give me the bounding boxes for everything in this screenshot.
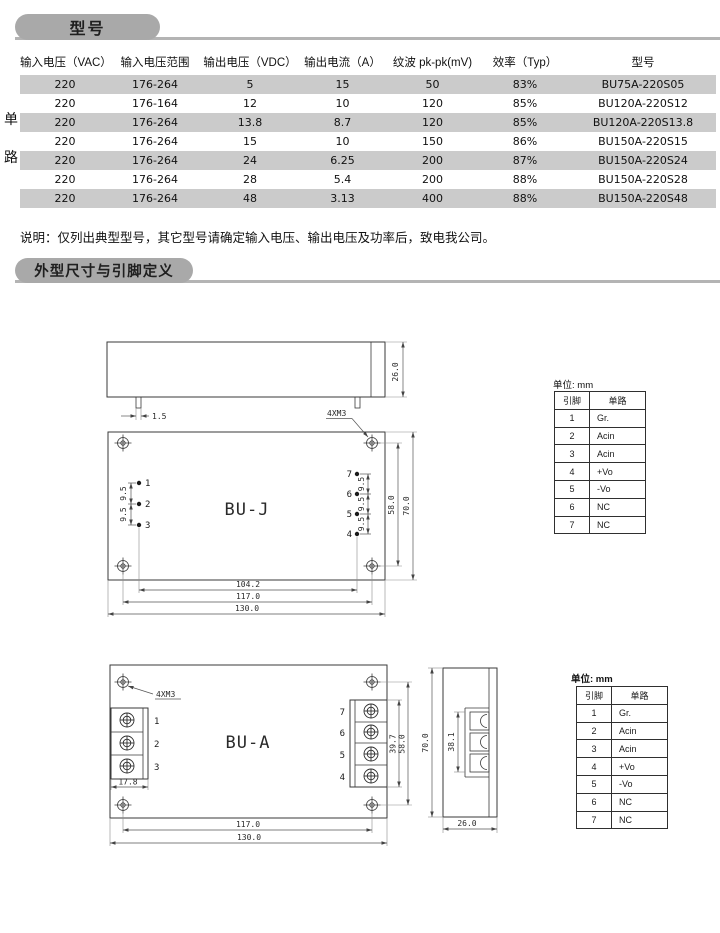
cell: Gr. — [612, 704, 668, 722]
cell: 6 — [577, 793, 612, 811]
cell: 176-264 — [110, 189, 200, 208]
dim-label: 104.2 — [236, 580, 260, 589]
cell: 220 — [20, 113, 110, 132]
cell: 83% — [480, 75, 570, 94]
cell: -Vo — [612, 775, 668, 793]
cell: 4 — [577, 758, 612, 776]
section-title-text: 外型尺寸与引脚定义 — [34, 260, 174, 281]
row-group-label-single: 单 — [3, 109, 19, 129]
table-row: 1Gr. — [577, 704, 668, 722]
cell: BU75A-220S05 — [570, 75, 716, 94]
cell: 5.4 — [300, 170, 385, 189]
cell: 220 — [20, 151, 110, 170]
cell: -Vo — [590, 480, 646, 498]
mounting-hole-icon — [364, 674, 381, 691]
col-header: 型号 — [570, 48, 716, 75]
cell: 85% — [480, 94, 570, 113]
dim-label: 117.0 — [236, 820, 260, 829]
bu-j-top-view: BU-J 1 2 3 9.5 9.5 7 6 5 4 — [108, 432, 417, 617]
cell: 7 — [577, 811, 612, 829]
unit-label: 单位: mm — [571, 671, 613, 685]
cell: NC — [612, 811, 668, 829]
bu-a-left-terminal-block: 1 2 3 17.8 — [111, 708, 159, 790]
dim-label: 17.8 — [118, 778, 137, 787]
cell: Gr. — [590, 409, 646, 427]
cell: 176-264 — [110, 132, 200, 151]
dim-label: 117.0 — [236, 592, 260, 601]
cell: 88% — [480, 170, 570, 189]
bu-a-side-view: 70.0 38.1 26.0 — [421, 668, 497, 833]
dim-26: 26.0 — [385, 342, 407, 397]
dim-label: 70.0 — [402, 496, 411, 515]
dim-label: 9.5 — [357, 477, 366, 492]
bu-a-right-terminal-block: 7 6 5 4 — [340, 700, 387, 787]
dim-58: 58.0 — [378, 443, 402, 566]
cell: BU150A-220S15 — [570, 132, 716, 151]
cell: Acin — [590, 427, 646, 445]
cell: 6.25 — [300, 151, 385, 170]
pin-definition-table-buj: 引脚单路 1Gr. 2Acin 3Acin 4+Vo 5-Vo 6NC 7NC — [554, 391, 646, 534]
pin-dot — [137, 481, 141, 485]
mounting-hole-icon — [115, 674, 132, 691]
table-row: 220176-264483.1340088%BU150A-220S48 — [20, 189, 716, 208]
section-title-models: 型号 — [15, 14, 160, 40]
pin-number: 3 — [154, 763, 159, 773]
dim-label: 9.5 — [119, 486, 128, 501]
cell: 200 — [385, 170, 480, 189]
mounting-hole-icon — [115, 797, 132, 814]
cell: 200 — [385, 151, 480, 170]
cell: 86% — [480, 132, 570, 151]
cell: 3.13 — [300, 189, 385, 208]
dim-label: 58.0 — [398, 734, 407, 753]
cell: 87% — [480, 151, 570, 170]
cell: 176-264 — [110, 75, 200, 94]
cell: Acin — [612, 740, 668, 758]
cell: 7 — [555, 516, 590, 534]
cell: 15 — [200, 132, 300, 151]
table-row: 220176-2645155083%BU75A-220S05 — [20, 75, 716, 94]
terminal-screw-icon — [120, 713, 134, 727]
pin-dot — [355, 492, 359, 496]
cell: 150 — [385, 132, 480, 151]
cell: 400 — [385, 189, 480, 208]
cell: 220 — [20, 189, 110, 208]
dim-label: 130.0 — [237, 833, 261, 842]
table-row: 7NC — [555, 516, 646, 534]
pin-number: 7 — [347, 470, 352, 480]
cell: 1 — [577, 704, 612, 722]
cell: 5 — [200, 75, 300, 94]
cell: 13.8 — [200, 113, 300, 132]
dim-label: 39.7 — [389, 734, 398, 753]
pin-number: 6 — [340, 729, 345, 739]
table-row: 2Acin — [577, 722, 668, 740]
cell: 12 — [200, 94, 300, 113]
cell: BU120A-220S13.8 — [570, 113, 716, 132]
cell: 220 — [20, 94, 110, 113]
screw-label: 4XM3 — [327, 409, 346, 418]
col-header: 效率（Typ） — [480, 48, 570, 75]
terminal-screw-icon — [364, 704, 378, 718]
cell: 120 — [385, 113, 480, 132]
pin-col-header: 单路 — [590, 392, 646, 410]
col-header: 输入电压（VAC） — [20, 48, 110, 75]
table-row: 220176-26413.88.712085%BU120A-220S13.8 — [20, 113, 716, 132]
table-row: 7NC — [577, 811, 668, 829]
dim-label: 58.0 — [387, 495, 396, 514]
col-header: 输出电压（VDC） — [200, 48, 300, 75]
dim-117: 117.0 — [123, 811, 372, 833]
pin-dot — [137, 502, 141, 506]
terminal-screw-icon — [364, 747, 378, 761]
cell: 176-164 — [110, 94, 200, 113]
cell: 220 — [20, 170, 110, 189]
cell: Acin — [590, 445, 646, 463]
mounting-hole-icon — [364, 797, 381, 814]
dim-1-5: 1.5 — [121, 408, 167, 421]
dim-70: 70.0 — [421, 668, 443, 817]
bu-j-side-view: 26.0 1.5 4XM3 — [107, 342, 407, 437]
dim-label: 26.0 — [391, 362, 400, 381]
pin-number: 5 — [347, 510, 352, 520]
mounting-hole-icon — [364, 558, 381, 575]
pin-dot — [355, 472, 359, 476]
table-row: 4+Vo — [577, 758, 668, 776]
terminal-screw-icon — [364, 725, 378, 739]
cell: 48 — [200, 189, 300, 208]
cell: 85% — [480, 113, 570, 132]
pin-number: 2 — [154, 740, 159, 750]
cell: 2 — [555, 427, 590, 445]
cell: BU120A-220S12 — [570, 94, 716, 113]
dim-26: 26.0 — [443, 817, 497, 833]
cell: 1 — [555, 409, 590, 427]
terminal-screw-icon — [364, 769, 378, 783]
dim-label: 130.0 — [235, 604, 259, 613]
bu-a-top-view: BU-A 4XM3 1 2 3 17.8 — [110, 665, 412, 846]
cell: 10 — [300, 94, 385, 113]
pin-dot — [355, 532, 359, 536]
bu-j-left-pins: 1 2 3 9.5 9.5 — [119, 479, 150, 531]
cell: 3 — [577, 740, 612, 758]
dim-label: 9.5 — [357, 517, 366, 532]
cell: 10 — [300, 132, 385, 151]
cell: +Vo — [612, 758, 668, 776]
table-row: 4+Vo — [555, 463, 646, 481]
cell: NC — [590, 498, 646, 516]
mounting-hole-icon — [364, 435, 381, 452]
pin-col-header: 单路 — [612, 687, 668, 705]
table-row: 6NC — [577, 793, 668, 811]
cell: 4 — [555, 463, 590, 481]
mounting-hole-icon — [115, 435, 132, 452]
pin-number: 6 — [347, 490, 352, 500]
cell: 176-264 — [110, 151, 200, 170]
section-title-text: 型号 — [69, 15, 105, 39]
row-group-label-channel: 路 — [3, 147, 19, 167]
cell: BU150A-220S28 — [570, 170, 716, 189]
col-header: 输入电压范围 — [110, 48, 200, 75]
cell: 5 — [555, 480, 590, 498]
cell: 50 — [385, 75, 480, 94]
cell: 176-264 — [110, 170, 200, 189]
dim-104: 104.2 — [139, 528, 357, 593]
mounting-hole-icon — [115, 558, 132, 575]
screw-label: 4XM3 — [156, 690, 175, 699]
cell: NC — [590, 516, 646, 534]
dim-label: 38.1 — [447, 732, 456, 751]
module-label: BU-A — [226, 733, 271, 753]
spec-header-row: 输入电压（VAC） 输入电压范围 输出电压（VDC） 输出电流（A） 纹波 pk… — [20, 48, 716, 75]
module-label: BU-J — [225, 500, 270, 520]
dim-label: 9.5 — [357, 497, 366, 512]
table-row: 220176-264285.420088%BU150A-220S28 — [20, 170, 716, 189]
pin-col-header: 引脚 — [577, 687, 612, 705]
cell: 88% — [480, 189, 570, 208]
pin-number: 1 — [154, 717, 159, 727]
table-row: 220176-164121012085%BU120A-220S12 — [20, 94, 716, 113]
cell: 6 — [555, 498, 590, 516]
cell: 220 — [20, 132, 110, 151]
table-row: 3Acin — [577, 740, 668, 758]
dim-label: 9.5 — [119, 507, 128, 522]
unit-label: 单位: mm — [553, 377, 593, 391]
cell: 28 — [200, 170, 300, 189]
pin-number: 2 — [145, 500, 150, 510]
cell: 8.7 — [300, 113, 385, 132]
pin-definition-table-bua: 引脚单路 1Gr. 2Acin 3Acin 4+Vo 5-Vo 6NC 7NC — [576, 686, 668, 829]
pin-dot — [355, 512, 359, 516]
table-row: 1Gr. — [555, 409, 646, 427]
spec-table: 输入电压（VAC） 输入电压范围 输出电压（VDC） 输出电流（A） 纹波 pk… — [20, 48, 716, 208]
pin-number: 5 — [340, 751, 345, 761]
pin-col-header: 引脚 — [555, 392, 590, 410]
cell: NC — [612, 793, 668, 811]
cell: 5 — [577, 775, 612, 793]
terminal-screw-icon — [120, 736, 134, 750]
table-row: 220176-264151015086%BU150A-220S15 — [20, 132, 716, 151]
pin-number: 3 — [145, 521, 150, 531]
pin-number: 4 — [347, 530, 352, 540]
cell: Acin — [612, 722, 668, 740]
table-row: 2Acin — [555, 427, 646, 445]
screw-callout: 4XM3 — [326, 409, 368, 437]
table-row: 5-Vo — [577, 775, 668, 793]
dim-label: 1.5 — [152, 412, 167, 421]
dim-label: 70.0 — [421, 733, 430, 752]
terminal-screw-icon — [120, 759, 134, 773]
screw-callout: 4XM3 — [128, 686, 181, 699]
pin-number: 1 — [145, 479, 150, 489]
section-title-dimensions: 外型尺寸与引脚定义 — [15, 258, 193, 283]
cell: BU150A-220S48 — [570, 189, 716, 208]
table-row: 5-Vo — [555, 480, 646, 498]
table-row: 6NC — [555, 498, 646, 516]
cell: 2 — [577, 722, 612, 740]
table-row: 220176-264246.2520087%BU150A-220S24 — [20, 151, 716, 170]
dim-label: 26.0 — [457, 819, 476, 828]
cell: +Vo — [590, 463, 646, 481]
pin-dot — [137, 523, 141, 527]
cell: 120 — [385, 94, 480, 113]
col-header: 输出电流（A） — [300, 48, 385, 75]
col-header: 纹波 pk-pk(mV) — [385, 48, 480, 75]
cell: BU150A-220S24 — [570, 151, 716, 170]
table-row: 3Acin — [555, 445, 646, 463]
dim-38-1: 38.1 — [447, 712, 465, 772]
note-text: 说明：仅列出典型型号，其它型号请确定输入电压、输出电压及功率后，致电我公司。 — [20, 227, 495, 246]
bu-j-right-pins: 7 6 5 4 9.5 9.5 9.5 — [347, 470, 371, 540]
cell: 15 — [300, 75, 385, 94]
pin-number: 7 — [340, 708, 345, 718]
pin-number: 4 — [340, 773, 345, 783]
cell: 176-264 — [110, 113, 200, 132]
cell: 220 — [20, 75, 110, 94]
cell: 24 — [200, 151, 300, 170]
cell: 3 — [555, 445, 590, 463]
